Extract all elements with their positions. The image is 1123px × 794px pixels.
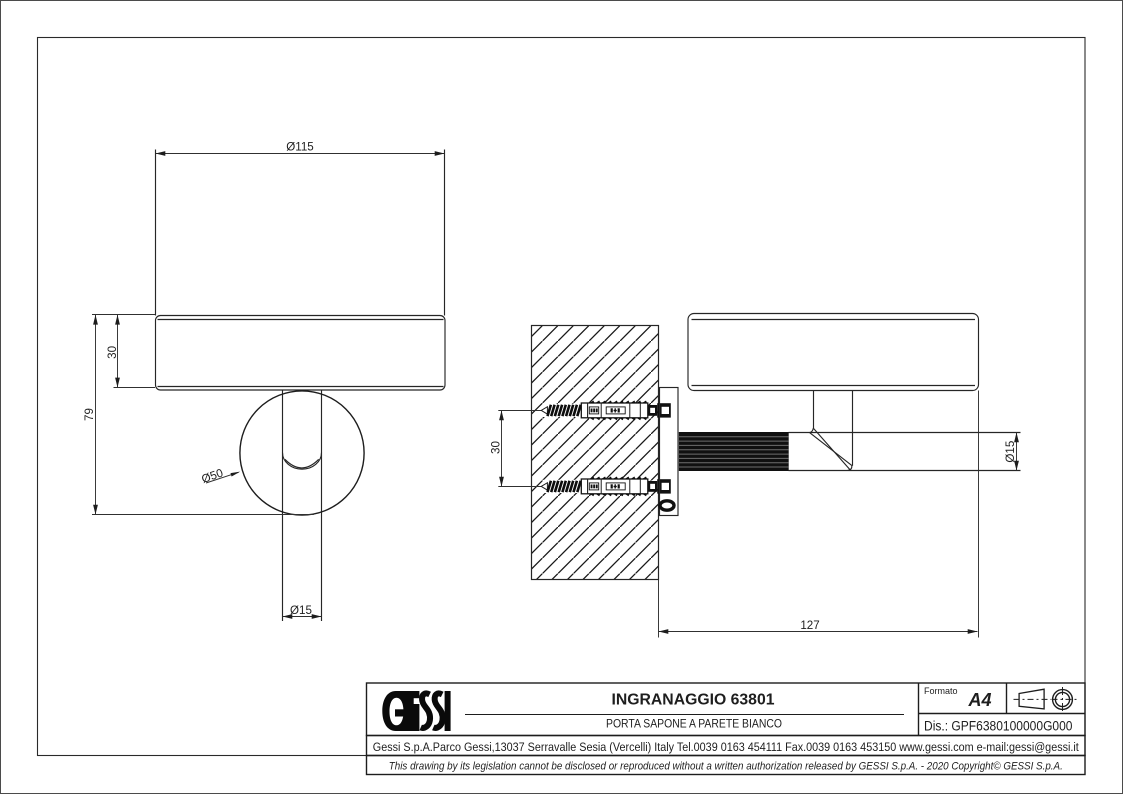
svg-text:This drawing by its legislatio: This drawing by its legislation cannot b… <box>389 760 1063 772</box>
svg-text:Formato: Formato <box>924 686 958 696</box>
svg-text:Gessi S.p.A.Parco Gessi,13037: Gessi S.p.A.Parco Gessi,13037 Serravalle… <box>373 740 1080 754</box>
svg-text:30: 30 <box>490 441 503 454</box>
svg-text:Ø15: Ø15 <box>1004 441 1017 463</box>
svg-text:127: 127 <box>800 619 819 632</box>
svg-text:PORTA SAPONE A PARETE BIANCO: PORTA SAPONE A PARETE BIANCO <box>606 719 782 731</box>
svg-text:A4: A4 <box>967 690 991 710</box>
svg-text:INGRANAGGIO 63801: INGRANAGGIO 63801 <box>612 691 775 708</box>
svg-text:Ø15: Ø15 <box>290 604 312 617</box>
svg-text:Ø115: Ø115 <box>286 141 314 154</box>
svg-text:30: 30 <box>106 346 119 359</box>
svg-text:79: 79 <box>83 408 96 421</box>
svg-text:Dis.: GPF6380100000G000: Dis.: GPF6380100000G000 <box>924 719 1073 734</box>
